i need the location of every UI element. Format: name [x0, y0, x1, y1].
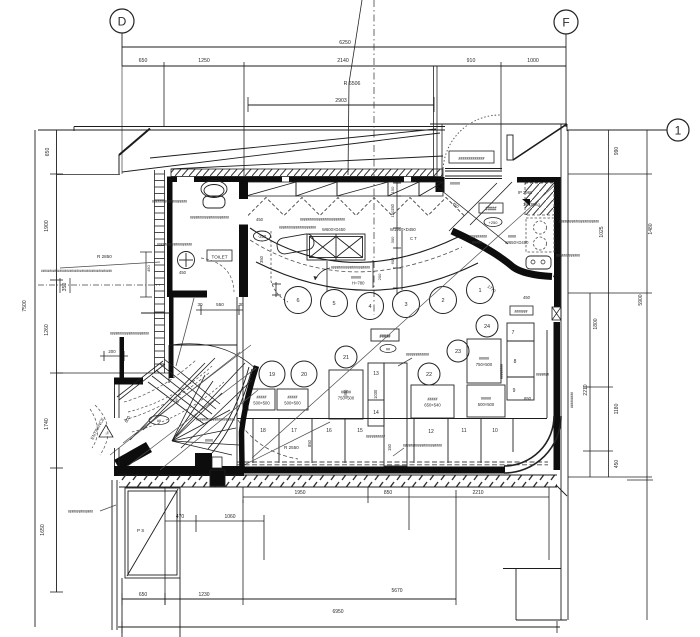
- svg-text:5900: 5900: [638, 294, 644, 305]
- svg-text:500×500: 500×500: [253, 401, 270, 406]
- svg-text:22: 22: [426, 372, 432, 378]
- svg-text:!: !: [105, 431, 106, 436]
- svg-text:H=780: H=780: [352, 281, 365, 286]
- svg-text:R 6506: R 6506: [344, 81, 361, 87]
- svg-text:19: 19: [269, 372, 275, 378]
- svg-text:W1950×D450: W1950×D450: [390, 227, 416, 232]
- svg-text:+250: +250: [488, 220, 498, 225]
- svg-text:W600×D450: W600×D450: [322, 227, 346, 232]
- svg-text:1060: 1060: [224, 514, 235, 520]
- svg-text:1480: 1480: [648, 223, 654, 234]
- svg-text:14: 14: [373, 410, 379, 416]
- svg-text:########: ########: [499, 363, 504, 379]
- svg-text:#####: #####: [257, 395, 268, 400]
- svg-text:300: 300: [390, 236, 395, 243]
- svg-text:650: 650: [45, 148, 51, 157]
- svg-text:20: 20: [301, 372, 307, 378]
- svg-text:#####: #####: [288, 395, 299, 400]
- svg-text:F: F: [562, 16, 569, 30]
- svg-text:5: 5: [332, 301, 335, 307]
- svg-text:850: 850: [384, 490, 393, 496]
- svg-text:#####################: #####################: [196, 417, 236, 422]
- svg-text:450: 450: [256, 217, 264, 222]
- svg-text:350: 350: [259, 255, 264, 263]
- svg-text:12: 12: [428, 429, 434, 435]
- svg-text:2210: 2210: [472, 490, 483, 496]
- svg-text:1230: 1230: [198, 592, 209, 598]
- svg-text:4: 4: [368, 304, 371, 310]
- svg-text:####: ####: [205, 438, 214, 443]
- svg-text:11: 11: [461, 428, 466, 434]
- svg-text:-250: -250: [258, 234, 267, 239]
- svg-text:######################: ######################: [559, 219, 600, 224]
- svg-text:#####################: #####################: [331, 265, 371, 270]
- svg-text:####################: ####################: [279, 225, 317, 230]
- svg-text:750×500: 750×500: [476, 362, 493, 367]
- svg-text:500×500: 500×500: [284, 401, 301, 406]
- svg-text:##: ##: [157, 418, 162, 423]
- svg-text:7500: 7500: [22, 300, 28, 312]
- svg-text:1: 1: [478, 288, 481, 294]
- svg-text:##: ##: [386, 347, 391, 352]
- svg-text:TOILET: TOILET: [212, 255, 228, 260]
- svg-text:200: 200: [108, 349, 116, 354]
- svg-text:#####################: #####################: [190, 215, 230, 220]
- svg-text:350: 350: [62, 283, 68, 292]
- svg-text:16: 16: [326, 428, 332, 434]
- svg-text:450: 450: [614, 460, 620, 469]
- svg-text:1800: 1800: [593, 318, 599, 329]
- svg-text:1740: 1740: [44, 418, 50, 430]
- svg-text:600: 600: [390, 257, 395, 264]
- svg-text:550: 550: [216, 302, 224, 307]
- svg-text:#########: #########: [470, 234, 488, 239]
- svg-text:3: 3: [404, 302, 407, 308]
- svg-text:1000: 1000: [527, 58, 539, 64]
- svg-text:(85): (85): [343, 389, 348, 397]
- svg-text:#####: #####: [351, 275, 362, 280]
- svg-text:##########: ##########: [366, 434, 386, 439]
- svg-text:#####: #####: [479, 356, 490, 361]
- svg-text:W650×D480: W650×D480: [505, 240, 529, 245]
- svg-text:150: 150: [390, 203, 395, 211]
- svg-text:2: 2: [441, 298, 444, 304]
- svg-text:#####: #####: [428, 397, 439, 402]
- svg-text:650: 650: [524, 396, 532, 401]
- svg-text:R 2850: R 2850: [97, 254, 112, 259]
- svg-text:IP 2960: IP 2960: [518, 190, 533, 195]
- svg-text:650: 650: [139, 592, 148, 598]
- svg-text:#######: #######: [515, 309, 529, 314]
- svg-text:9: 9: [513, 388, 516, 394]
- svg-text:#####: #####: [450, 181, 461, 186]
- svg-text:1030: 1030: [373, 389, 378, 399]
- svg-text:18: 18: [260, 428, 266, 434]
- svg-text:150: 150: [390, 186, 395, 193]
- svg-text:650×540: 650×540: [424, 403, 441, 408]
- svg-text:150: 150: [387, 443, 392, 451]
- svg-text:1025: 1025: [599, 226, 605, 237]
- svg-text:#####################: #####################: [403, 443, 443, 448]
- svg-text:2210: 2210: [583, 384, 589, 395]
- svg-text:15: 15: [357, 428, 363, 434]
- svg-text:6: 6: [296, 298, 299, 304]
- svg-text:1250: 1250: [198, 58, 210, 64]
- svg-text:#####################: #####################: [110, 331, 150, 336]
- svg-text:###################: ###################: [157, 242, 193, 247]
- svg-text:1900: 1900: [44, 220, 50, 232]
- svg-text:6950: 6950: [332, 609, 343, 615]
- svg-text:8: 8: [514, 359, 517, 365]
- svg-text:1: 1: [675, 124, 682, 138]
- svg-text:##############: ##############: [68, 509, 94, 514]
- svg-text:17: 17: [291, 428, 297, 434]
- svg-text:5670: 5670: [391, 588, 402, 594]
- svg-text:7: 7: [512, 330, 515, 336]
- svg-text:24: 24: [484, 324, 490, 330]
- svg-text:##############################: ########################################…: [41, 269, 113, 273]
- svg-text:450: 450: [179, 270, 187, 275]
- svg-text:30: 30: [197, 302, 203, 307]
- svg-text:450: 450: [146, 265, 151, 272]
- svg-text:2903: 2903: [335, 98, 347, 104]
- svg-text:#############: #############: [459, 156, 485, 161]
- svg-text:200: 200: [377, 273, 382, 280]
- svg-text:#######: #######: [536, 372, 550, 377]
- svg-text:450: 450: [523, 295, 531, 300]
- svg-text:#####: #####: [472, 240, 483, 245]
- svg-text:############: ############: [406, 352, 430, 357]
- svg-text:########################: ########################: [300, 217, 346, 222]
- svg-text:650: 650: [139, 58, 148, 64]
- svg-text:500×500: 500×500: [478, 402, 495, 407]
- svg-text:D: D: [118, 15, 127, 29]
- svg-text:R 2550: R 2550: [284, 445, 299, 450]
- svg-text:#########: #########: [569, 391, 574, 408]
- svg-text:1260: 1260: [44, 324, 50, 336]
- svg-text:990: 990: [614, 147, 620, 156]
- svg-text:850: 850: [307, 439, 312, 447]
- svg-text:####: ####: [508, 234, 517, 239]
- svg-text:2140: 2140: [337, 58, 349, 64]
- svg-text:1950: 1950: [294, 490, 305, 496]
- svg-text:10: 10: [492, 428, 498, 434]
- svg-text:13: 13: [373, 371, 379, 377]
- svg-text:6250: 6250: [339, 40, 351, 46]
- svg-text:1180: 1180: [614, 403, 620, 414]
- svg-text:23: 23: [455, 349, 461, 355]
- svg-text:1650: 1650: [40, 524, 46, 536]
- svg-text:C T: C T: [410, 236, 417, 241]
- svg-text:#####: #####: [481, 396, 492, 401]
- svg-text:910: 910: [467, 58, 476, 64]
- svg-text:21: 21: [343, 355, 349, 361]
- svg-text:P S: P S: [137, 528, 144, 533]
